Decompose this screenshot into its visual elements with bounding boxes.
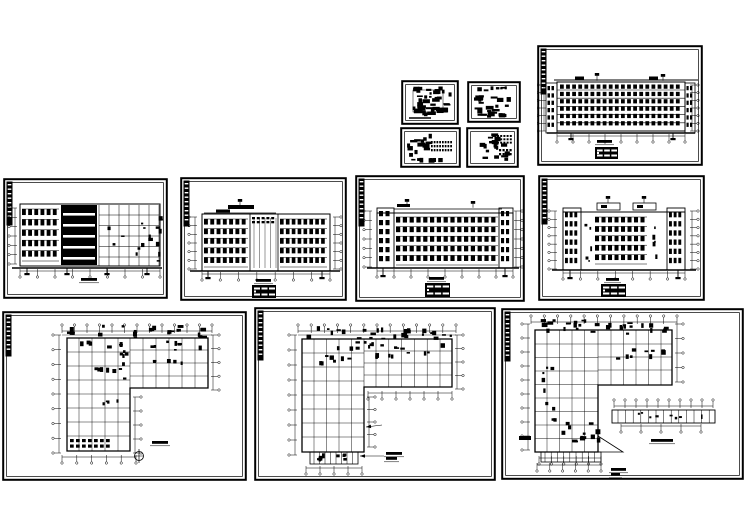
cad-drawing-svg xyxy=(466,127,519,168)
sheet-detail-d xyxy=(466,127,519,168)
cad-drawing-svg xyxy=(538,175,705,301)
cad-drawing-svg xyxy=(180,177,347,301)
cad-drawing-svg xyxy=(400,127,461,168)
cad-drawing-svg xyxy=(501,308,744,480)
cad-drawing-svg xyxy=(355,175,525,302)
sheet-elevation-top-right xyxy=(537,45,703,166)
sheet-plan-1 xyxy=(2,311,247,481)
sheet-plan-2 xyxy=(254,307,496,481)
sheet-elevation-4 xyxy=(538,175,705,301)
sheet-elevation-2 xyxy=(180,177,347,301)
cad-drawing-svg xyxy=(3,178,168,299)
drawing-canvas xyxy=(0,0,749,530)
sheet-detail-c xyxy=(400,127,461,168)
cad-drawing-svg xyxy=(2,311,247,481)
cad-drawing-svg xyxy=(401,80,459,125)
sheet-plan-3 xyxy=(501,308,744,480)
sheet-detail-a xyxy=(401,80,459,125)
sheet-elevation-3 xyxy=(355,175,525,302)
cad-drawing-svg xyxy=(254,307,496,481)
cad-drawing-svg xyxy=(467,81,521,123)
cad-drawing-svg xyxy=(537,45,703,166)
sheet-detail-b xyxy=(467,81,521,123)
sheet-section-1 xyxy=(3,178,168,299)
